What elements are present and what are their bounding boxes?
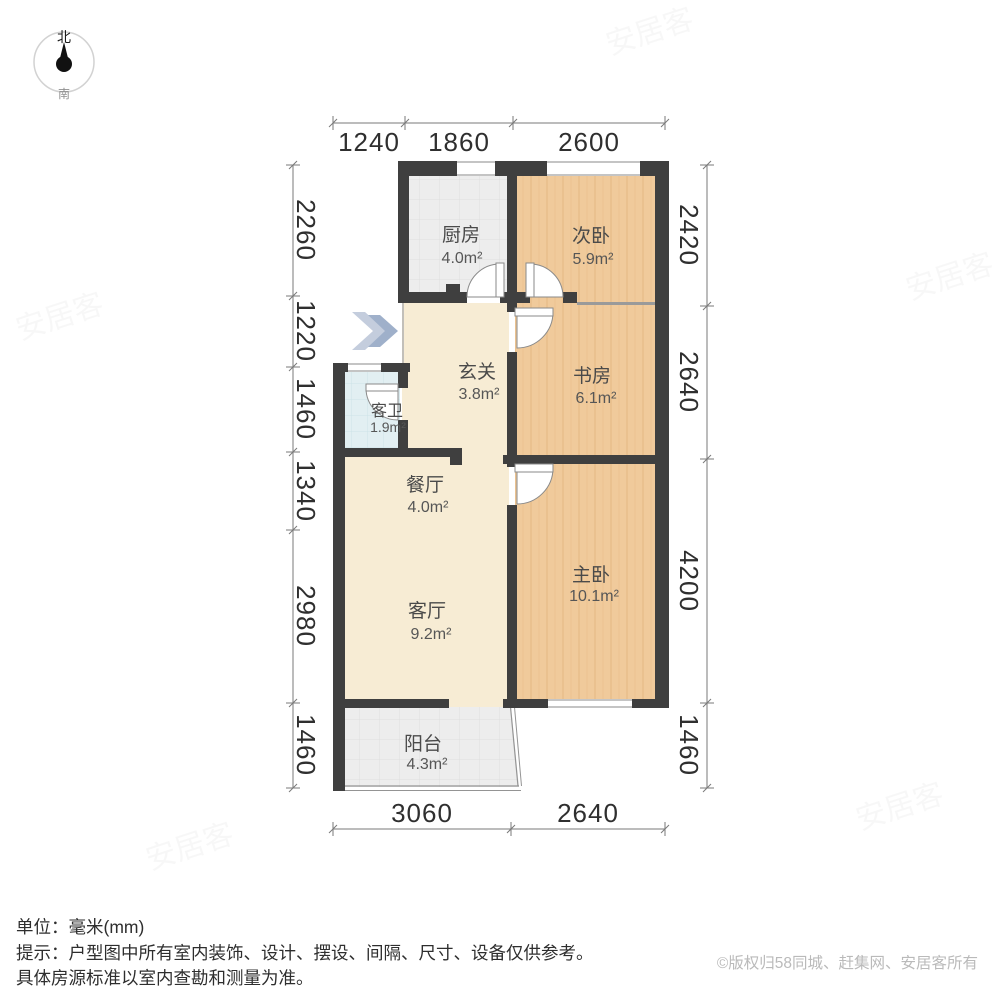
footer-unit-label: 单位：毫米(mm)	[16, 917, 144, 937]
svg-text:4.3m²: 4.3m²	[407, 756, 449, 773]
dim-bottom-1: 2640	[557, 798, 619, 828]
dim-right-2: 4200	[674, 550, 704, 612]
wall-kitchen-left	[398, 161, 409, 303]
svg-text:客卫: 客卫	[371, 402, 403, 420]
dim-left-0: 2260	[291, 199, 321, 261]
master-bedroom-window	[548, 699, 632, 708]
wall-bath-bottom-stub	[333, 448, 462, 457]
watermark-text: 安居客	[902, 247, 998, 306]
svg-text:9.2m²: 9.2m²	[411, 626, 453, 643]
room-label-kitchen: 厨房 4.0m²	[442, 224, 484, 267]
svg-text:6.1m²: 6.1m²	[576, 390, 618, 407]
svg-text:次卧: 次卧	[572, 225, 610, 247]
dim-left-2: 1460	[291, 378, 321, 440]
wall-living-bottom	[333, 699, 449, 708]
svg-text:书房: 书房	[573, 365, 611, 387]
wall-spine-b	[507, 352, 517, 467]
wall-kitchen-step	[446, 284, 460, 295]
wall-kitchen-bottom-c	[563, 292, 577, 303]
dim-left-1: 1220	[291, 300, 321, 362]
kitchen-window	[457, 161, 495, 176]
room-label-study: 书房 6.1m²	[573, 365, 617, 407]
svg-text:10.1m²: 10.1m²	[569, 588, 619, 605]
wall-left	[333, 363, 345, 791]
svg-text:4.0m²: 4.0m²	[442, 250, 484, 267]
dim-top-2: 2600	[558, 127, 620, 157]
wall-bath-right-a	[398, 363, 408, 388]
room-label-balcony: 阳台 4.3m²	[404, 733, 448, 773]
dim-right-3: 1460	[674, 714, 704, 776]
floorplan-page: 安居客 安居客 安居客 安居客 安居客 北 南	[0, 0, 1000, 1000]
dim-right-0: 2420	[674, 204, 704, 266]
svg-text:餐厅: 餐厅	[406, 474, 444, 496]
svg-text:5.9m²: 5.9m²	[573, 251, 615, 268]
watermark-text: 安居客	[602, 2, 698, 61]
dim-top-1: 1860	[428, 127, 490, 157]
room-label-second-bedroom: 次卧 5.9m²	[572, 225, 614, 268]
watermark-text: 安居客	[12, 287, 108, 346]
svg-text:玄关: 玄关	[458, 361, 496, 383]
wall-right	[655, 161, 669, 708]
partition-second-bedroom-study	[577, 302, 657, 305]
room-label-guest-bath: 客卫 1.9m²	[370, 402, 406, 435]
footer: 单位：毫米(mm) 提示：户型图中所有室内装饰、设计、摆设、间隔、尺寸、设备仅供…	[16, 917, 978, 988]
svg-text:厨房: 厨房	[442, 224, 480, 246]
guest-bath-window	[348, 363, 381, 372]
entry-arrow-icon	[352, 312, 398, 350]
room-hallway-floor	[402, 303, 509, 463]
watermark-text: 安居客	[852, 777, 948, 836]
dim-right-1: 2640	[674, 351, 704, 413]
compass: 北 南	[34, 29, 94, 101]
room-label-dining: 餐厅 4.0m²	[406, 474, 449, 516]
svg-text:阳台: 阳台	[404, 733, 442, 755]
second-bedroom-window	[547, 161, 640, 176]
watermark-text: 安居客	[142, 817, 238, 876]
dim-left-3: 1340	[291, 460, 321, 522]
footer-tip-line2: 具体房源标准以室内查勘和测量为准。	[16, 968, 314, 988]
wall-spine-c	[507, 505, 517, 708]
svg-text:1.9m²: 1.9m²	[370, 419, 406, 435]
dim-top-0: 1240	[338, 127, 400, 157]
footer-tip-line1: 提示：户型图中所有室内装饰、设计、摆设、间隔、尺寸、设备仅供参考。	[16, 943, 594, 963]
room-label-hallway: 玄关 3.8m²	[458, 361, 500, 403]
svg-text:4.0m²: 4.0m²	[408, 499, 450, 516]
room-label-living: 客厅 9.2m²	[408, 600, 452, 643]
compass-needle-ball	[56, 56, 72, 72]
dim-left-5: 1460	[291, 714, 321, 776]
wall-kitchen-bedroom-divider	[507, 161, 517, 304]
svg-text:客厅: 客厅	[408, 600, 446, 622]
dim-left-4: 2980	[291, 585, 321, 647]
floorplan-svg: 安居客 安居客 安居客 安居客 安居客 北 南	[0, 0, 1000, 1000]
wall-stub-cap	[450, 448, 462, 465]
dim-bottom-0: 3060	[391, 798, 453, 828]
svg-text:3.8m²: 3.8m²	[459, 386, 501, 403]
wall-study-bottom	[503, 455, 669, 464]
compass-south-label: 南	[58, 86, 70, 101]
svg-text:主卧: 主卧	[572, 564, 610, 586]
footer-copyright: ©版权归58同城、赶集网、安居客所有	[717, 954, 978, 972]
